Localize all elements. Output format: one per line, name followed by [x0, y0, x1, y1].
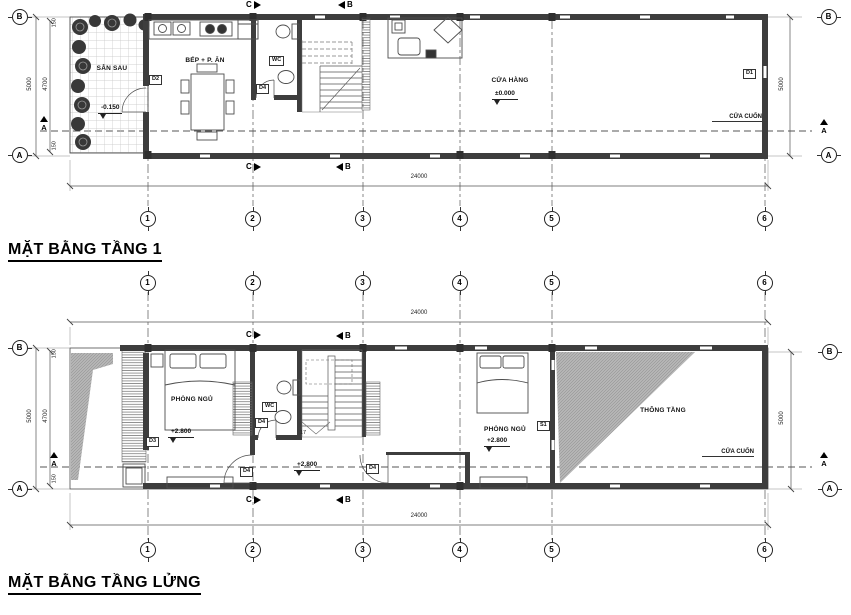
level-arrow-icon [170, 438, 176, 443]
section-letter: A [821, 459, 826, 468]
dim-total-bottom-plan2: 24000 [389, 513, 449, 519]
section-marker-a-left-plan2: A [50, 452, 58, 468]
grid-bubble-5-bottom-plan2: 5 [544, 542, 560, 558]
section-arrow-icon [820, 119, 828, 125]
section-marker-b-top-plan1: B [338, 0, 353, 9]
section-letter: C [246, 162, 252, 171]
dim-wall-bottom-plan1: 150 [52, 136, 58, 156]
level-shop-value: ±0.000 [492, 91, 518, 100]
section-letter: C [246, 495, 252, 504]
section-arrow-icon [820, 452, 828, 458]
plan2-title: MẶT BẰNG TẦNG LỬNG [8, 574, 201, 595]
door-tag-d3: D3 [146, 437, 159, 447]
grid-bubble-4-plan1: 4 [452, 211, 468, 227]
dim-height-left-plan1: 5000 [27, 66, 33, 102]
door-tag-d4-hall: D4 [366, 464, 379, 474]
level-shop: ±0.000 [492, 91, 518, 105]
grid-bubble-a-right-plan1: A [821, 147, 837, 163]
grid-bubble-1-top-plan2: 1 [140, 275, 156, 291]
grid-bubble-3-top-plan2: 3 [355, 275, 371, 291]
section-arrow-icon [50, 452, 58, 458]
room-label-bedroom1: PHÒNG NGỦ [155, 396, 229, 403]
room-tag-wc2: WC [262, 402, 277, 412]
section-arrow-icon [336, 332, 343, 340]
section-marker-c-bottom-plan2: C [246, 495, 261, 504]
section-arrow-icon [254, 331, 261, 339]
window-tag-s1: S1 [537, 421, 550, 431]
section-arrow-icon [40, 116, 48, 122]
level-bedroom2: +2.800 [484, 438, 510, 452]
door-tag-d4-wc1: D4 [256, 84, 269, 94]
room-label-bedroom2: PHÒNG NGỦ [468, 426, 542, 433]
grid-bubble-b-left-plan2: B [12, 340, 28, 356]
section-arrow-icon [336, 496, 343, 504]
section-letter: C [246, 0, 252, 9]
section-arrow-icon [336, 163, 343, 171]
section-marker-b-bottom-plan1: B [336, 162, 351, 171]
plan1-title: MẶT BẰNG TẦNG 1 [8, 241, 162, 262]
grid-bubble-4-top-plan2: 4 [452, 275, 468, 291]
section-letter: A [821, 126, 826, 135]
door-tag-d4-bedroom1: D4 [240, 467, 253, 477]
grid-bubble-4-bottom-plan2: 4 [452, 542, 468, 558]
level-yard: -0.150 [98, 105, 122, 119]
grid-bubble-6-bottom-plan2: 6 [757, 542, 773, 558]
level-arrow-icon [486, 447, 492, 452]
grid-bubble-b-left-plan1: B [12, 9, 28, 25]
grid-bubble-2-bottom-plan2: 2 [245, 542, 261, 558]
section-marker-c-bottom-plan1: C [246, 162, 261, 171]
section-marker-a-left-plan1: A [40, 116, 48, 132]
section-arrow-icon [254, 496, 261, 504]
annotation-overlay: SÂN SAU -0.150 BẾP + P. ĂN WC D2 D4 CỬA … [0, 0, 851, 615]
grid-bubble-b-right-plan2: B [822, 344, 838, 360]
level-arrow-icon [494, 100, 500, 105]
section-marker-a-right-plan1: A [820, 119, 828, 135]
door-tag-d2: D2 [149, 75, 162, 85]
level-hall: +2.800 [294, 462, 320, 476]
grid-bubble-b-right-plan1: B [821, 9, 837, 25]
grid-bubble-1-plan1: 1 [140, 211, 156, 227]
floor-plan-sheet: SÂN SAU -0.150 BẾP + P. ĂN WC D2 D4 CỬA … [0, 0, 851, 615]
room-label-kitchen: BẾP + P. ĂN [168, 57, 242, 64]
level-arrow-icon [296, 471, 302, 476]
dim-wall-top-plan1: 150 [52, 13, 58, 33]
section-marker-c-top-plan2: C [246, 330, 261, 339]
dim-inner-left-plan2: 4700 [43, 398, 49, 434]
room-label-shop: CỬA HÀNG [475, 77, 545, 84]
section-arrow-icon [254, 163, 261, 171]
level-bedroom1: +2.800 [168, 429, 194, 443]
dim-total-plan1: 24000 [389, 174, 449, 180]
level-yard-value: -0.150 [98, 105, 122, 114]
section-letter: B [345, 495, 351, 504]
dim-inner-left-plan1: 4700 [43, 66, 49, 102]
room-label-yard: SÂN SAU [84, 65, 140, 72]
section-marker-b-top-plan2: B [336, 331, 351, 340]
dim-height-right-plan1: 5000 [779, 66, 785, 102]
section-letter: B [345, 162, 351, 171]
section-letter: B [345, 331, 351, 340]
level-arrow-icon [100, 114, 106, 119]
grid-bubble-6-top-plan2: 6 [757, 275, 773, 291]
rolling-door-label-plan2: CỬA CUỐN [702, 449, 754, 457]
section-marker-b-bottom-plan2: B [336, 495, 351, 504]
grid-bubble-a-left-plan1: A [12, 147, 28, 163]
section-letter: A [51, 459, 56, 468]
stair-steps-label: 17 [300, 430, 306, 436]
dim-wall-bottom-plan2: 150 [52, 469, 58, 489]
level-bedroom1-value: +2.800 [168, 429, 194, 438]
section-marker-a-right-plan2: A [820, 452, 828, 468]
dim-total-top-plan2: 24000 [389, 310, 449, 316]
section-marker-c-top-plan1: C [246, 0, 261, 9]
dim-wall-top-plan2: 150 [52, 344, 58, 364]
room-tag-wc1: WC [269, 56, 284, 66]
grid-bubble-2-plan1: 2 [245, 211, 261, 227]
level-hall-value: +2.800 [294, 462, 320, 471]
rolling-door-label-plan1: CỬA CUỐN [712, 114, 762, 122]
grid-bubble-a-right-plan2: A [822, 481, 838, 497]
section-arrow-icon [338, 1, 345, 9]
door-tag-d1: D1 [743, 69, 756, 79]
grid-bubble-5-top-plan2: 5 [544, 275, 560, 291]
level-bedroom2-value: +2.800 [484, 438, 510, 447]
section-letter: B [347, 0, 353, 9]
door-tag-d4-wc2: D4 [255, 418, 268, 428]
room-label-void: THÔNG TẦNG [627, 407, 699, 414]
section-letter: A [41, 123, 46, 132]
section-arrow-icon [254, 1, 261, 9]
grid-bubble-a-left-plan2: A [12, 481, 28, 497]
dim-height-left-plan2: 5000 [27, 398, 33, 434]
grid-bubble-1-bottom-plan2: 1 [140, 542, 156, 558]
dim-height-right-plan2: 5000 [779, 400, 785, 436]
grid-bubble-3-plan1: 3 [355, 211, 371, 227]
grid-bubble-6-plan1: 6 [757, 211, 773, 227]
grid-bubble-2-top-plan2: 2 [245, 275, 261, 291]
grid-bubble-5-plan1: 5 [544, 211, 560, 227]
section-letter: C [246, 330, 252, 339]
grid-bubble-3-bottom-plan2: 3 [355, 542, 371, 558]
